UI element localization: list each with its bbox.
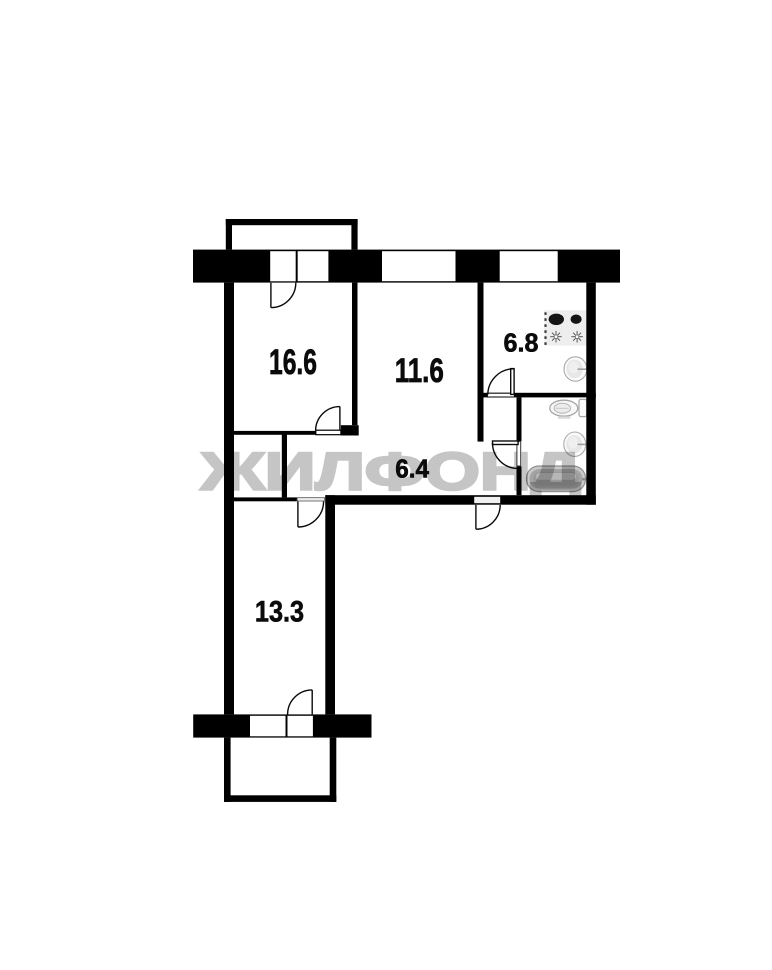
svg-text:11.6: 11.6 [395, 352, 444, 390]
svg-text:6.8: 6.8 [504, 330, 539, 358]
svg-text:13.3: 13.3 [255, 596, 304, 628]
svg-text:ЖИЛФОНД: ЖИЛФОНД [200, 442, 581, 501]
svg-text:16.6: 16.6 [269, 343, 317, 382]
svg-text:6.4: 6.4 [395, 455, 429, 483]
